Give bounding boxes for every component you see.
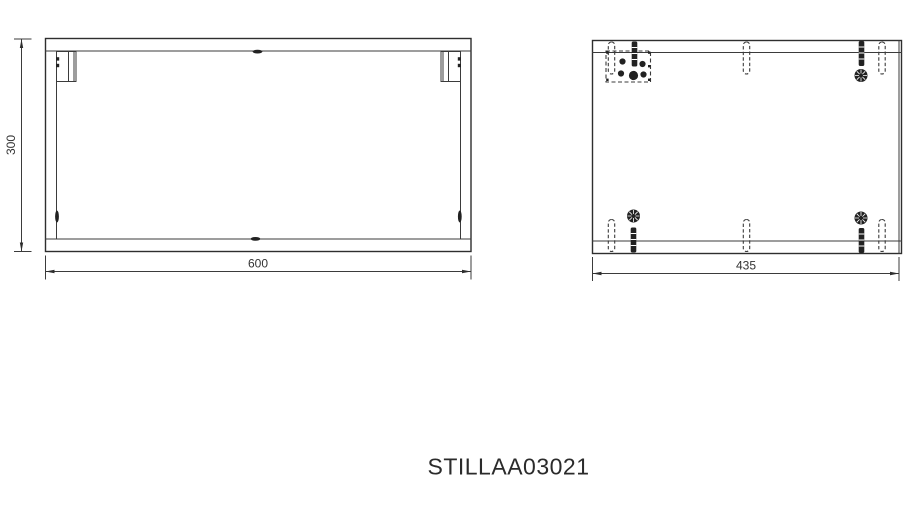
dimension-width: 600: [46, 256, 472, 280]
bracket-screw-mark: [56, 64, 59, 67]
front-view: [46, 39, 472, 252]
product-code-title: STILLAA03021: [427, 454, 589, 480]
arrowhead-up: [20, 39, 23, 48]
left-edge-fixing-mark: [55, 211, 59, 223]
arrowhead-right: [890, 272, 899, 275]
bracket-screw-mark: [56, 57, 59, 60]
arrowhead-right: [462, 270, 471, 273]
plate-screw: [619, 58, 625, 64]
right-edge-fixing-mark: [458, 211, 462, 223]
dimension-depth-label: 435: [736, 259, 756, 273]
cam-lock: [627, 210, 640, 223]
dowel-pin: [631, 228, 637, 253]
bracket-screw-mark: [458, 64, 461, 67]
dowel-pin: [859, 228, 865, 253]
arrowhead-left: [593, 272, 602, 275]
drawing-sheet: 300 600: [0, 0, 923, 505]
cam-lock: [855, 69, 868, 82]
top-edge-fixing-mark: [253, 50, 263, 54]
dimension-depth: 435: [593, 257, 900, 281]
front-outer-frame: [46, 39, 472, 252]
bracket-screw-mark: [458, 57, 461, 60]
dimension-width-label: 600: [248, 257, 268, 271]
plate-screw: [639, 61, 645, 67]
arrowhead-left: [46, 270, 55, 273]
side-outer-frame: [593, 41, 902, 254]
dowel-pin: [632, 42, 638, 67]
plate-screw: [618, 70, 624, 76]
plate-cam: [629, 71, 638, 80]
bottom-edge-fixing-mark: [251, 237, 261, 241]
dimension-height-label: 300: [4, 135, 18, 155]
dowel-pin: [859, 41, 865, 66]
arrowhead-down: [20, 243, 23, 252]
plate-screw: [640, 71, 646, 77]
side-view: [593, 41, 902, 254]
technical-drawing-canvas: 300 600: [0, 0, 923, 505]
dimension-height: 300: [4, 39, 32, 252]
cam-lock: [855, 212, 868, 225]
